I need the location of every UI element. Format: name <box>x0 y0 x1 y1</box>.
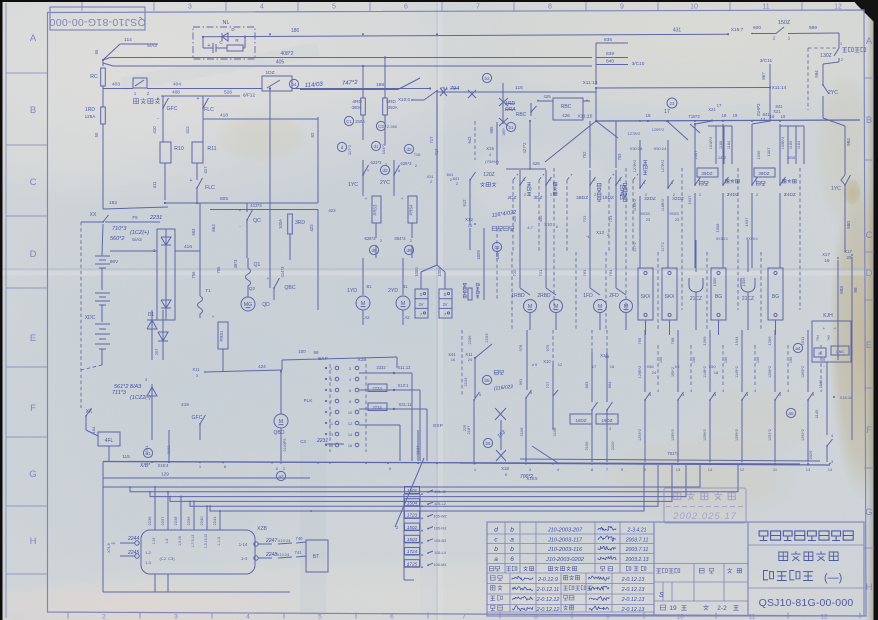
svg-text:23: 23 <box>670 101 675 106</box>
svg-text:1544: 1544 <box>734 336 739 346</box>
svg-text:1YC: 1YC <box>348 182 358 188</box>
svg-text:39DZ: 39DZ <box>701 171 712 176</box>
svg-text:SKX: SKX <box>664 294 675 300</box>
svg-text:b2: b2 <box>484 76 490 81</box>
svg-text:105-W2: 105-W2 <box>433 514 446 518</box>
svg-text:129S*2: 129S*2 <box>652 128 664 132</box>
svg-text:R: R <box>819 351 822 356</box>
svg-text:701*3: 701*3 <box>667 451 679 456</box>
svg-text:1006: 1006 <box>414 267 419 277</box>
svg-text:1: 1 <box>330 367 332 371</box>
svg-text:723: 723 <box>582 215 587 222</box>
svg-text:105-J2: 105-J2 <box>434 490 446 494</box>
svg-text:2231: 2231 <box>149 215 162 221</box>
svg-text:d6: d6 <box>406 248 412 253</box>
svg-text:1149*2: 1149*2 <box>735 366 739 378</box>
svg-text:5/A3: 5/A3 <box>132 237 142 242</box>
svg-text:600: 600 <box>753 25 761 31</box>
svg-text:105-M4: 105-M4 <box>434 563 447 567</box>
svg-text:GFC: GFC <box>167 106 178 112</box>
svg-text:1007: 1007 <box>766 147 771 157</box>
svg-text:5: 5 <box>332 4 336 11</box>
svg-text:12: 12 <box>834 4 842 11</box>
svg-text:1009: 1009 <box>712 277 717 287</box>
svg-text:410: 410 <box>152 126 157 134</box>
svg-text:150: 150 <box>724 357 728 363</box>
svg-text:BG: BG <box>772 294 779 300</box>
svg-text:1-6:16: 1-6:16 <box>178 536 182 546</box>
svg-text:13: 13 <box>676 467 681 472</box>
svg-text:2: 2 <box>102 614 106 620</box>
svg-text:39DZ: 39DZ <box>758 171 769 176</box>
svg-text:+: + <box>834 326 837 331</box>
svg-text:7: 7 <box>462 614 466 620</box>
svg-text:95: 95 <box>94 49 99 54</box>
svg-text:413*3: 413*3 <box>250 203 262 208</box>
svg-text:6/F12: 6/F12 <box>243 93 256 99</box>
svg-text:150: 150 <box>692 357 696 363</box>
svg-text:884: 884 <box>607 381 612 388</box>
svg-text:1: 1 <box>593 178 595 182</box>
svg-text:16: 16 <box>645 113 651 118</box>
svg-text:E: E <box>30 333 36 344</box>
svg-text:X13: X13 <box>596 230 604 235</box>
svg-text:+: + <box>267 276 270 281</box>
svg-text:D: D <box>30 249 37 260</box>
svg-text:1007: 1007 <box>693 150 698 160</box>
svg-text:984: 984 <box>846 138 851 146</box>
svg-text:18DZ: 18DZ <box>575 418 586 423</box>
svg-text:b: b <box>510 527 514 534</box>
svg-text:XDC: XDC <box>85 315 96 321</box>
svg-text:1724: 1724 <box>407 549 418 554</box>
svg-text:2-0.12.13: 2-0.12.13 <box>621 607 645 613</box>
svg-text:1148*2: 1148*2 <box>703 366 707 378</box>
svg-text:13: 13 <box>329 433 333 437</box>
svg-text:2YC: 2YC <box>828 90 838 96</box>
svg-text:1937: 1937 <box>744 217 749 227</box>
svg-text:19: 19 <box>733 113 738 118</box>
svg-text:12: 12 <box>820 614 828 620</box>
svg-text:2V: 2V <box>442 302 447 307</box>
svg-text:2231: 2231 <box>316 438 328 444</box>
svg-text:B: B <box>866 115 872 126</box>
svg-text:X5: X5 <box>675 364 681 369</box>
svg-text:b: b <box>494 546 498 553</box>
svg-text:763: 763 <box>582 269 587 276</box>
svg-text:6: 6 <box>349 389 351 393</box>
svg-text:X16:4: X16:4 <box>158 463 170 468</box>
svg-text:17: 17 <box>592 364 597 369</box>
svg-text:1146: 1146 <box>818 379 823 388</box>
svg-text:9: 9 <box>606 614 610 620</box>
svg-text:1RBD: 1RBD <box>511 293 525 299</box>
svg-text:747*2: 747*2 <box>342 80 359 87</box>
svg-text:1504: 1504 <box>407 500 418 505</box>
svg-text:18: 18 <box>605 354 610 359</box>
svg-text:14: 14 <box>348 433 352 437</box>
svg-text:11: 11 <box>749 614 756 620</box>
svg-text:G: G <box>865 507 872 518</box>
svg-text:Q2: Q2 <box>249 286 256 291</box>
svg-text:S: S <box>659 592 664 599</box>
svg-text:103B*2: 103B*2 <box>781 137 785 149</box>
svg-text:2233: 2233 <box>372 386 382 391</box>
svg-text:H: H <box>30 536 37 547</box>
svg-text:718*3: 718*3 <box>688 114 700 119</box>
svg-text:1YD: 1YD <box>347 288 357 294</box>
svg-text:1503: 1503 <box>407 537 418 542</box>
svg-text:b: b <box>510 546 514 553</box>
svg-text:10: 10 <box>676 614 684 620</box>
svg-text:6: 6 <box>390 614 394 620</box>
svg-text:+: + <box>365 196 368 201</box>
svg-text:117*2: 117*2 <box>633 242 637 252</box>
svg-text:+: + <box>367 168 370 173</box>
svg-text:118B*2: 118B*2 <box>633 199 637 211</box>
svg-text:PRS1: PRS1 <box>219 330 224 342</box>
svg-text:18: 18 <box>610 364 615 369</box>
svg-text:19: 19 <box>781 114 786 119</box>
svg-text:2332: 2332 <box>376 365 386 370</box>
svg-text:T1: T1 <box>205 288 211 293</box>
svg-text:130Z: 130Z <box>820 53 831 59</box>
svg-text:XZB: XZB <box>257 526 267 532</box>
svg-text:101B*2: 101B*2 <box>709 137 713 149</box>
svg-text:A2: A2 <box>404 315 410 320</box>
svg-text:117*2: 117*2 <box>347 144 352 155</box>
svg-text:422: 422 <box>309 224 314 232</box>
svg-text:2: 2 <box>699 193 701 197</box>
svg-text:612: 612 <box>462 199 467 207</box>
svg-text:129B*2: 129B*2 <box>638 366 642 378</box>
svg-text:756: 756 <box>216 266 221 274</box>
svg-text:188: 188 <box>376 82 384 88</box>
svg-text:127B*2: 127B*2 <box>661 160 665 172</box>
svg-text:424: 424 <box>258 364 266 369</box>
svg-text:R10: R10 <box>174 146 184 152</box>
svg-text:99: 99 <box>314 350 319 355</box>
svg-text:150: 150 <box>659 357 663 363</box>
svg-text:4: 4 <box>349 378 351 382</box>
svg-text:SKX: SKX <box>640 294 651 300</box>
svg-text:2196: 2196 <box>467 335 472 345</box>
svg-text:765: 765 <box>637 337 642 344</box>
svg-text:980: 980 <box>846 221 851 229</box>
svg-text:9X33: 9X33 <box>640 211 650 216</box>
svg-text:X18:5: X18:5 <box>527 476 539 481</box>
svg-text:4FL: 4FL <box>105 438 114 444</box>
svg-text:FLC: FLC <box>204 107 214 113</box>
svg-text:F: F <box>30 403 36 414</box>
svg-text:150: 150 <box>756 357 760 363</box>
svg-text:11: 11 <box>762 4 769 11</box>
svg-text:18: 18 <box>722 113 727 118</box>
svg-text:F: F <box>866 425 872 436</box>
svg-text:127B*2: 127B*2 <box>628 132 640 136</box>
svg-text:6: 6 <box>510 556 514 563</box>
svg-text:EXP: EXP <box>318 356 328 362</box>
svg-text:D: D <box>866 268 873 279</box>
svg-text:QNG: QNG <box>836 350 844 354</box>
svg-text:2: 2 <box>524 193 526 197</box>
svg-text:1RD: 1RD <box>85 107 95 113</box>
svg-text:105-L2: 105-L2 <box>434 502 446 506</box>
svg-text:RBC: RBC <box>516 112 527 118</box>
svg-text:XX: XX <box>90 212 97 218</box>
svg-text:841: 841 <box>776 104 784 109</box>
svg-text:RC: RC <box>90 74 98 80</box>
svg-text:1809: 1809 <box>476 250 481 260</box>
svg-text:741: 741 <box>295 550 303 555</box>
svg-text:19DZ: 19DZ <box>601 418 612 423</box>
svg-text:127B*2: 127B*2 <box>633 160 637 172</box>
svg-text:2-2: 2-2 <box>717 605 727 612</box>
svg-text:1-2: 1-2 <box>145 550 152 555</box>
svg-text:753: 753 <box>617 153 622 161</box>
svg-text:983: 983 <box>839 286 844 294</box>
svg-text:2248: 2248 <box>265 552 277 558</box>
svg-text:NL: NL <box>223 20 230 26</box>
svg-text:1-1.11: 1-1.11 <box>217 536 221 545</box>
svg-text:2106: 2106 <box>519 427 524 437</box>
svg-text:623*3: 623*3 <box>371 160 383 165</box>
svg-text:2-0.12.13: 2-0.12.13 <box>621 577 645 583</box>
svg-text:4: 4 <box>246 614 250 620</box>
svg-text:MG: MG <box>244 302 253 308</box>
svg-text:X50:24: X50:24 <box>654 146 667 151</box>
svg-text:8: 8 <box>349 400 351 404</box>
svg-text:1: 1 <box>549 178 551 182</box>
svg-text:560*2: 560*2 <box>110 236 124 242</box>
svg-text:b5: b5 <box>484 378 490 383</box>
svg-text:4: 4 <box>260 4 264 11</box>
svg-text:19: 19 <box>669 605 677 612</box>
svg-text:24DZ: 24DZ <box>727 192 739 198</box>
svg-text:14: 14 <box>708 467 713 472</box>
svg-text:X11:14: X11:14 <box>772 85 787 91</box>
svg-text:1184: 1184 <box>727 141 731 149</box>
svg-text:M: M <box>361 301 366 307</box>
svg-text:2003.7.11: 2003.7.11 <box>625 537 649 543</box>
svg-text:3DZ: 3DZ <box>533 195 542 201</box>
svg-text:+: + <box>197 96 200 102</box>
svg-text:d2: d2 <box>406 147 412 152</box>
svg-text:RRA: RRA <box>505 107 516 113</box>
svg-text:1292*2: 1292*2 <box>801 429 805 441</box>
svg-text:643: 643 <box>467 136 472 144</box>
svg-text:2002.025.17: 2002.025.17 <box>672 511 737 522</box>
svg-text:X31:11: X31:11 <box>399 402 413 407</box>
svg-text:BT: BT <box>313 554 319 560</box>
svg-text:1936: 1936 <box>756 150 761 160</box>
svg-text:X11:12: X11:12 <box>398 365 412 370</box>
svg-text:J10-2003-116: J10-2003-116 <box>547 547 583 553</box>
svg-text:10: 10 <box>348 411 352 415</box>
svg-text:32DZ: 32DZ <box>644 196 656 202</box>
svg-text:250A: 250A <box>355 119 365 124</box>
svg-text:192: 192 <box>109 200 117 206</box>
svg-text:985: 985 <box>489 126 494 134</box>
svg-text:100A: 100A <box>278 219 283 229</box>
svg-text:20: 20 <box>847 255 852 260</box>
svg-text:d1: d1 <box>373 144 379 149</box>
svg-text:X10: X10 <box>543 359 551 364</box>
svg-text:594: 594 <box>814 70 819 78</box>
svg-text:12: 12 <box>740 467 745 472</box>
svg-text:1/B2: 1/B2 <box>718 155 727 160</box>
svg-text:1: 1 <box>619 178 621 182</box>
svg-text:12: 12 <box>558 362 563 367</box>
svg-text:961: 961 <box>518 378 523 385</box>
svg-text:2: 2 <box>756 193 758 197</box>
svg-text:2108: 2108 <box>552 427 557 437</box>
svg-text:⇒: ⇒ <box>111 541 115 547</box>
svg-text:+: + <box>157 96 160 102</box>
svg-text:1269*2: 1269*2 <box>801 366 805 378</box>
svg-text:105-N3: 105-N3 <box>434 527 446 531</box>
svg-text:3/C10: 3/C10 <box>632 61 645 67</box>
svg-text:-380A: -380A <box>350 105 361 110</box>
svg-text:3: 3 <box>188 4 192 11</box>
svg-text:X/B*: X/B* <box>139 463 151 469</box>
svg-text:1FD: 1FD <box>583 293 593 299</box>
svg-text:1501: 1501 <box>407 488 418 493</box>
svg-text:184: 184 <box>91 426 96 433</box>
svg-text:100: 100 <box>298 349 306 354</box>
svg-text:628*3: 628*3 <box>365 236 377 241</box>
svg-text:1723: 1723 <box>407 513 418 518</box>
svg-text:425: 425 <box>543 94 551 99</box>
svg-text:417: 417 <box>203 166 208 174</box>
svg-text:663: 663 <box>191 228 196 236</box>
svg-text:105-L4: 105-L4 <box>434 551 446 555</box>
svg-text:5: 5 <box>318 614 322 620</box>
svg-text:X13:1: X13:1 <box>398 383 410 388</box>
svg-text:2241: 2241 <box>212 516 217 526</box>
svg-text:2003.7.11: 2003.7.11 <box>625 547 649 553</box>
svg-text:2RBD: 2RBD <box>537 293 551 299</box>
svg-text:QSJ10-81G-00-000: QSJ10-81G-00-000 <box>759 597 854 609</box>
svg-text:QBC: QBC <box>284 285 295 291</box>
svg-text:2-0.12.13: 2-0.12.13 <box>621 587 645 593</box>
svg-text:B: B <box>30 105 36 116</box>
svg-text:1184: 1184 <box>797 141 801 149</box>
svg-text:b6: b6 <box>485 441 491 446</box>
svg-text:2110: 2110 <box>610 441 615 450</box>
svg-text:X15: X15 <box>486 146 494 151</box>
svg-text:B1: B1 <box>366 284 372 289</box>
svg-text:D1: D1 <box>148 312 155 318</box>
svg-text:X15:7: X15:7 <box>731 27 744 33</box>
svg-text:24DZ: 24DZ <box>784 192 796 198</box>
svg-text:978: 978 <box>518 344 523 351</box>
svg-text:225: 225 <box>462 424 467 431</box>
svg-text:QC: QC <box>253 218 261 224</box>
svg-text:408: 408 <box>172 90 180 95</box>
svg-text:2238: 2238 <box>173 516 178 526</box>
svg-text:A: A <box>30 33 37 44</box>
svg-text:M: M <box>401 301 406 307</box>
svg-text:431: 431 <box>673 28 682 34</box>
svg-text:411: 411 <box>152 181 157 189</box>
svg-text:1806: 1806 <box>495 250 500 260</box>
svg-text:X13:24: X13:24 <box>277 552 290 557</box>
svg-text:2247: 2247 <box>265 538 277 544</box>
svg-text:2026: 2026 <box>808 450 813 460</box>
svg-text:X13:23: X13:23 <box>278 538 291 543</box>
svg-text:663: 663 <box>211 224 216 232</box>
svg-text:1180: 1180 <box>789 141 793 149</box>
svg-text:+: + <box>190 178 193 184</box>
svg-text:589: 589 <box>809 25 817 31</box>
svg-text:257: 257 <box>154 348 159 355</box>
svg-text:J10-2003-0202: J10-2003-0202 <box>545 557 585 563</box>
svg-text:F5: F5 <box>132 215 138 220</box>
svg-text:768: 768 <box>670 337 675 344</box>
svg-text:18: 18 <box>770 114 775 119</box>
svg-text:115: 115 <box>122 454 130 459</box>
svg-text:116: 116 <box>515 85 523 91</box>
svg-text:2-0.12.9: 2-0.12.9 <box>537 577 558 583</box>
svg-text:114: 114 <box>124 37 132 43</box>
svg-text:a: a <box>494 556 498 563</box>
svg-text:720: 720 <box>512 269 517 276</box>
svg-text:419: 419 <box>181 402 189 407</box>
svg-text:185*: 185* <box>502 128 506 136</box>
svg-text:H: H <box>866 582 873 593</box>
svg-text:QD: QD <box>262 302 270 308</box>
svg-text:418: 418 <box>220 113 228 119</box>
svg-text:R11: R11 <box>207 146 216 152</box>
svg-text:414*3: 414*3 <box>280 266 285 278</box>
svg-text:M: M <box>279 419 284 425</box>
svg-text:129: 129 <box>161 472 169 477</box>
svg-text:2239: 2239 <box>186 516 191 526</box>
svg-text:2-0.12.12: 2-0.12.12 <box>536 597 560 603</box>
svg-text:838: 838 <box>604 37 612 43</box>
svg-text:X56: X56 <box>646 364 654 369</box>
svg-text:1180: 1180 <box>719 141 723 149</box>
svg-text:A: A <box>866 36 873 47</box>
svg-text:X10: X10 <box>544 222 552 227</box>
svg-text:d: d <box>494 527 498 534</box>
svg-text:X17: X17 <box>822 252 830 257</box>
svg-text:2YD: 2YD <box>388 288 398 294</box>
svg-text:6: 6 <box>404 4 408 11</box>
svg-text:721: 721 <box>538 269 543 276</box>
svg-text:1BDZ: 1BDZ <box>576 195 588 201</box>
svg-text:C2: C2 <box>378 124 384 129</box>
svg-text:1268*2: 1268*2 <box>768 366 772 378</box>
svg-text:2: 2 <box>594 193 596 197</box>
svg-text:C: C <box>30 177 37 188</box>
svg-text:150: 150 <box>789 357 793 363</box>
svg-text:16: 16 <box>348 444 352 448</box>
svg-text:10: 10 <box>690 4 698 11</box>
svg-text:1: 1 <box>671 181 673 185</box>
svg-text:2193: 2193 <box>484 333 489 343</box>
svg-text:1: 1 <box>523 178 525 182</box>
svg-text:2240: 2240 <box>199 516 204 526</box>
svg-text:1269: 1269 <box>767 336 772 346</box>
svg-text:9X53: 9X53 <box>669 211 679 216</box>
svg-text:X12: X12 <box>465 217 473 222</box>
svg-text:a1: a1 <box>145 451 151 456</box>
svg-text:(C2. C3): (C2. C3) <box>159 556 175 561</box>
svg-text:794: 794 <box>450 86 459 92</box>
svg-text:J10-2003-207: J10-2003-207 <box>547 528 583 534</box>
